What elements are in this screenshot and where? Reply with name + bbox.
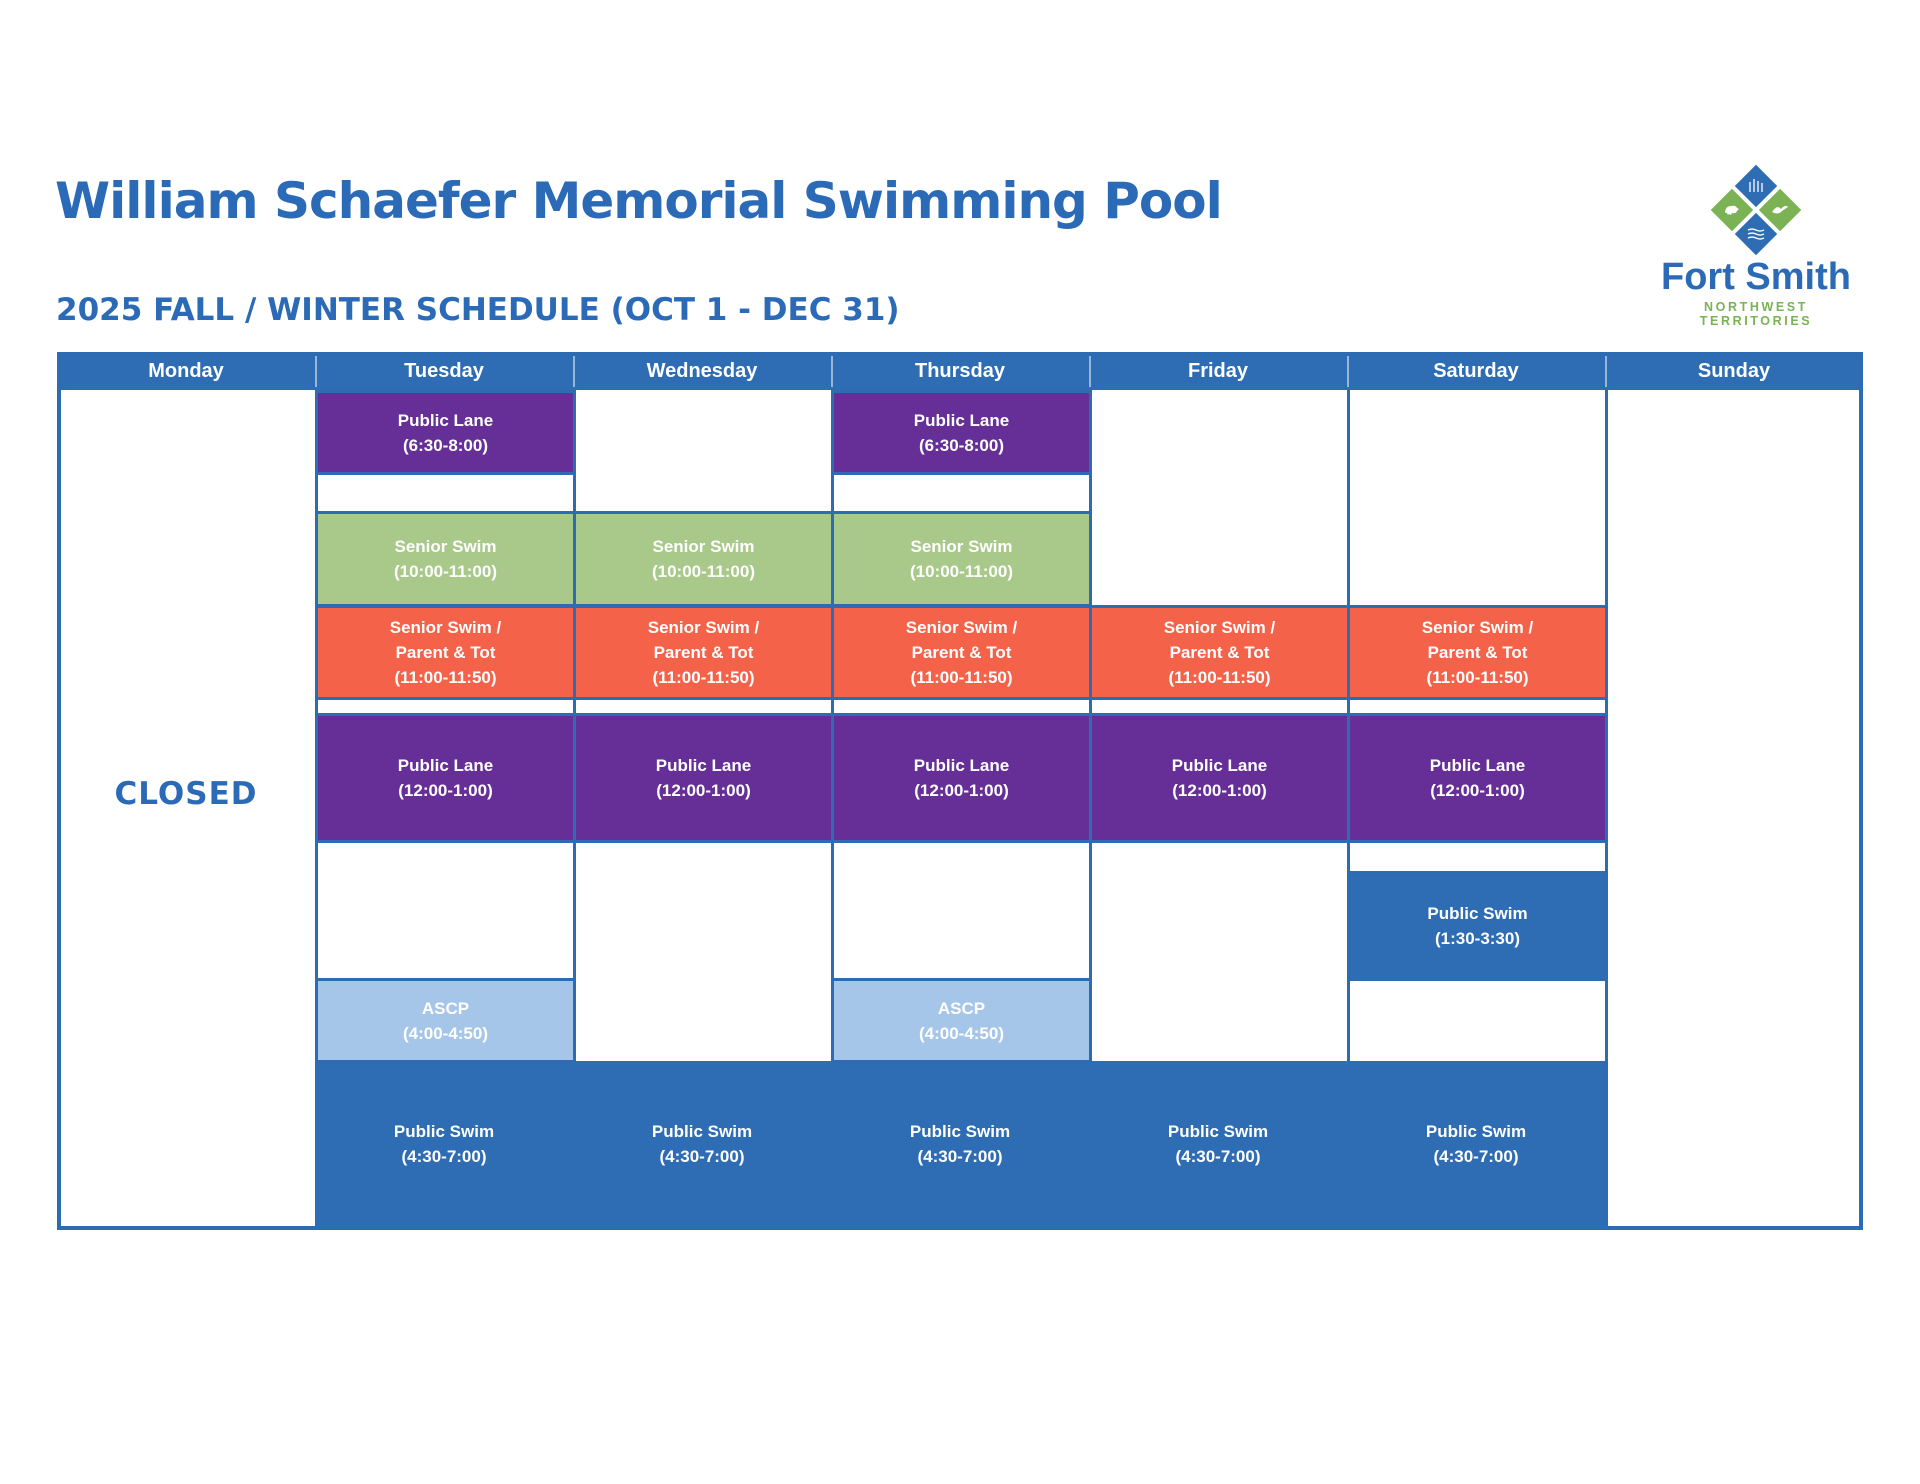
header-separator <box>573 355 575 387</box>
event-public-lane-noon-saturday: Public Lane (12:00-1:00) <box>1347 713 1608 843</box>
event-time: (4:30-7:00) <box>401 1144 486 1169</box>
day-header-saturday: Saturday <box>1347 352 1605 390</box>
event-label2: Parent & Tot <box>912 640 1012 665</box>
event-public-lane-early-thursday: Public Lane (6:30-8:00) <box>831 390 1092 475</box>
day-header-tuesday: Tuesday <box>315 352 573 390</box>
header-separator <box>1605 355 1607 387</box>
event-label: Senior Swim / <box>648 615 759 640</box>
event-time: (4:30-7:00) <box>659 1144 744 1169</box>
event-time: (4:30-7:00) <box>1433 1144 1518 1169</box>
event-time: (11:00-11:50) <box>394 665 496 690</box>
event-time: (12:00-1:00) <box>1172 778 1267 803</box>
event-time: (12:00-1:00) <box>656 778 751 803</box>
event-time: (11:00-11:50) <box>1426 665 1528 690</box>
event-public-lane-noon-wednesday: Public Lane (12:00-1:00) <box>573 713 834 843</box>
event-label: Senior Swim / <box>906 615 1017 640</box>
event-time: (10:00-11:00) <box>394 559 497 584</box>
event-label: Public Swim <box>394 1119 494 1144</box>
event-label: Public Lane <box>1172 753 1267 778</box>
event-ascp-thursday: ASCP (4:00-4:50) <box>831 978 1092 1063</box>
event-label: Public Lane <box>914 753 1009 778</box>
event-label: Public Lane <box>398 753 493 778</box>
header-separator <box>1089 355 1091 387</box>
event-label: ASCP <box>422 996 469 1021</box>
event-public-lane-noon-friday: Public Lane (12:00-1:00) <box>1089 713 1350 843</box>
event-time: (4:30-7:00) <box>917 1144 1002 1169</box>
logo-tagline: NORTHWEST TERRITORIES <box>1645 300 1867 328</box>
event-time: (6:30-8:00) <box>919 433 1004 458</box>
event-public-swim-afternoon-saturday: Public Swim (1:30-3:30) <box>1347 871 1608 981</box>
event-senior-swim-wednesday: Senior Swim (10:00-11:00) <box>573 511 834 607</box>
event-public-lane-early-tuesday: Public Lane (6:30-8:00) <box>315 390 576 475</box>
event-label2: Parent & Tot <box>654 640 754 665</box>
event-public-lane-noon-tuesday: Public Lane (12:00-1:00) <box>315 713 576 843</box>
logo-name: Fort Smith <box>1645 256 1867 299</box>
event-time: (11:00-11:50) <box>910 665 1012 690</box>
event-time: (12:00-1:00) <box>914 778 1009 803</box>
event-label2: Parent & Tot <box>1170 640 1270 665</box>
day-header-sunday: Sunday <box>1605 352 1863 390</box>
event-label: ASCP <box>938 996 985 1021</box>
day-header-monday: Monday <box>57 352 315 390</box>
event-label: Senior Swim <box>652 534 754 559</box>
event-time: (12:00-1:00) <box>1430 778 1525 803</box>
event-public-swim-evening-band: Public Swim (4:30-7:00) Public Swim (4:3… <box>315 1061 1605 1226</box>
day-header-row: Monday Tuesday Wednesday Thursday Friday… <box>57 352 1863 390</box>
event-time: (10:00-11:00) <box>910 559 1013 584</box>
logo-diamond <box>1711 165 1802 256</box>
event-label: Public Lane <box>914 408 1009 433</box>
event-time: (12:00-1:00) <box>398 778 493 803</box>
event-senior-parent-tot-thursday: Senior Swim / Parent & Tot (11:00-11:50) <box>831 605 1092 700</box>
event-senior-parent-tot-tuesday: Senior Swim / Parent & Tot (11:00-11:50) <box>315 605 576 700</box>
event-senior-parent-tot-saturday: Senior Swim / Parent & Tot (11:00-11:50) <box>1347 605 1608 700</box>
event-label: Senior Swim <box>394 534 496 559</box>
event-label: Public Swim <box>1168 1119 1268 1144</box>
event-label: Senior Swim / <box>1164 615 1275 640</box>
event-time: (10:00-11:00) <box>652 559 755 584</box>
event-senior-parent-tot-friday: Senior Swim / Parent & Tot (11:00-11:50) <box>1089 605 1350 700</box>
event-label: Senior Swim / <box>390 615 501 640</box>
event-label: Public Swim <box>1426 1119 1526 1144</box>
event-label: Senior Swim / <box>1422 615 1533 640</box>
day-header-thursday: Thursday <box>831 352 1089 390</box>
header-separator <box>831 355 833 387</box>
event-label: Public Swim <box>652 1119 752 1144</box>
event-time: (11:00-11:50) <box>652 665 754 690</box>
event-time: (4:30-7:00) <box>1175 1144 1260 1169</box>
event-label: Senior Swim <box>910 534 1012 559</box>
event-label: Public Lane <box>656 753 751 778</box>
event-label2: Parent & Tot <box>1428 640 1528 665</box>
event-label: Public Swim <box>910 1119 1010 1144</box>
event-label: Public Swim <box>1427 901 1527 926</box>
event-time: (1:30-3:30) <box>1435 926 1520 951</box>
event-public-swim-evening-saturday: Public Swim (4:30-7:00) <box>1347 1061 1605 1226</box>
event-label: Public Lane <box>398 408 493 433</box>
event-time: (4:00-4:50) <box>403 1021 488 1046</box>
monday-closed-label: CLOSED <box>57 776 315 812</box>
event-public-swim-evening-wednesday: Public Swim (4:30-7:00) <box>573 1061 831 1226</box>
event-ascp-tuesday: ASCP (4:00-4:50) <box>315 978 576 1063</box>
event-senior-swim-tuesday: Senior Swim (10:00-11:00) <box>315 511 576 607</box>
page-subtitle: 2025 FALL / WINTER SCHEDULE (OCT 1 - DEC… <box>56 292 1156 328</box>
event-public-swim-evening-thursday: Public Swim (4:30-7:00) <box>831 1061 1089 1226</box>
event-public-lane-noon-thursday: Public Lane (12:00-1:00) <box>831 713 1092 843</box>
event-label: Public Lane <box>1430 753 1525 778</box>
event-time: (6:30-8:00) <box>403 433 488 458</box>
event-senior-swim-thursday: Senior Swim (10:00-11:00) <box>831 511 1092 607</box>
fort-smith-logo: Fort Smith NORTHWEST TERRITORIES <box>1645 178 1867 338</box>
event-public-swim-evening-tuesday: Public Swim (4:30-7:00) <box>315 1061 573 1226</box>
header-separator <box>315 355 317 387</box>
page-title: William Schaefer Memorial Swimming Pool <box>55 172 1455 230</box>
event-label2: Parent & Tot <box>396 640 496 665</box>
event-time: (4:00-4:50) <box>919 1021 1004 1046</box>
event-public-swim-evening-friday: Public Swim (4:30-7:00) <box>1089 1061 1347 1226</box>
day-header-wednesday: Wednesday <box>573 352 831 390</box>
header-separator <box>1347 355 1349 387</box>
event-time: (11:00-11:50) <box>1168 665 1270 690</box>
event-senior-parent-tot-wednesday: Senior Swim / Parent & Tot (11:00-11:50) <box>573 605 834 700</box>
schedule-table: Monday Tuesday Wednesday Thursday Friday… <box>57 352 1863 1230</box>
day-header-friday: Friday <box>1089 352 1347 390</box>
